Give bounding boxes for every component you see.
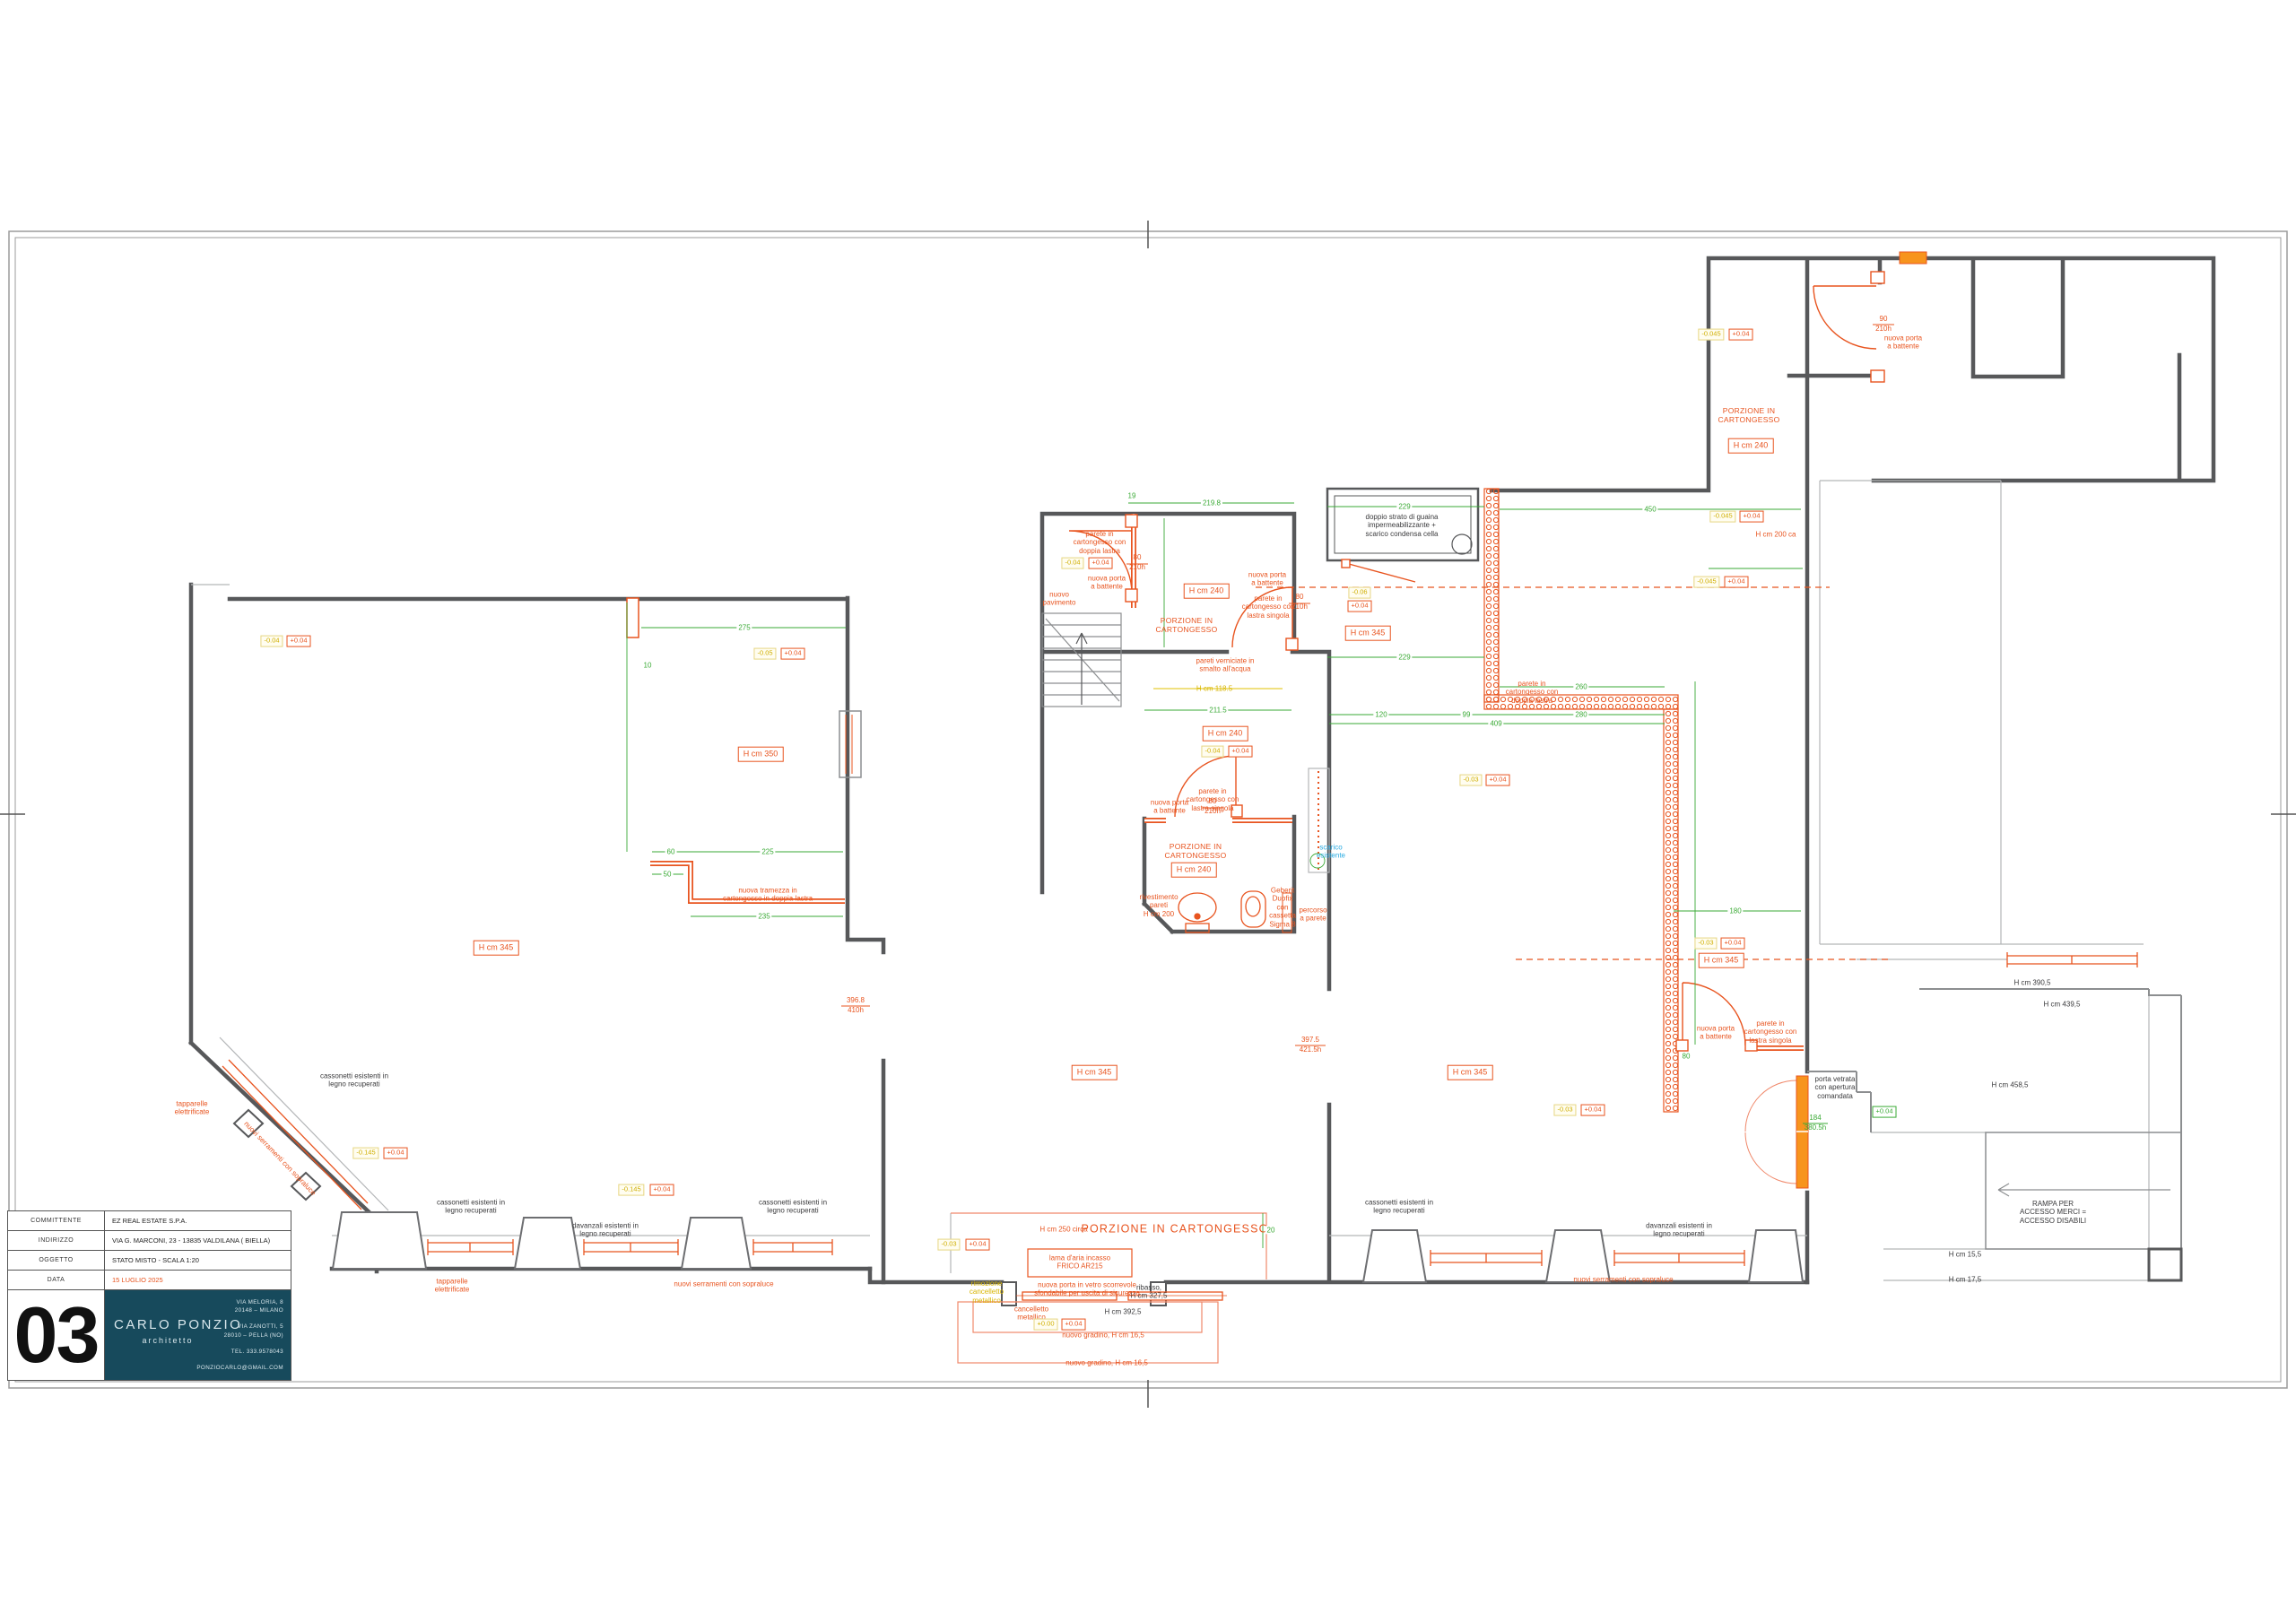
annotation-black: cassonetti esistenti in legno recuperati — [437, 1199, 505, 1216]
elevation-project: +0.04 — [287, 636, 311, 647]
dimension-value: 219.8 — [1201, 499, 1222, 507]
opening-dimension: 80 210h — [1205, 797, 1221, 817]
dimension-value: 450 — [1642, 505, 1657, 513]
row-value: EZ REAL ESTATE S.P.A. — [105, 1211, 291, 1230]
dimension-value: 19 — [1126, 491, 1138, 499]
annotation-black: H cm 15,5 — [1949, 1250, 1981, 1258]
elevation-existing: -0.03 — [1553, 1105, 1576, 1116]
dimension-value: 225 — [760, 847, 775, 855]
elevation-project: +0.04 — [1486, 775, 1510, 786]
row-label: COMMITTENTE — [8, 1211, 105, 1230]
sheet-number: 03 — [8, 1290, 105, 1380]
room-height-box: H cm 240 — [1184, 584, 1230, 599]
annotation: nuova porta a battente — [1884, 334, 1922, 351]
elevation-project: +0.04 — [1721, 938, 1745, 950]
annotation-black: RAMPA PER ACCESSO MERCI = ACCESSO DISABI… — [2020, 1200, 2086, 1225]
architect-brand: CARLO PONZIO architetto VIA MELORIA, 8 2… — [105, 1290, 291, 1380]
annotation: cancelletto metallico — [1014, 1305, 1048, 1323]
annotation: parete in cartongesso con lastra singola — [1187, 787, 1239, 812]
elevation-existing: -0.03 — [1694, 938, 1717, 950]
elevation-project: +0.04 — [1348, 601, 1372, 612]
annotation: tapparelle elettrificate — [435, 1278, 470, 1295]
annotation: Geberit Duofix con cassetta Sigma 8 — [1269, 886, 1296, 928]
dimension-value: 275 — [736, 623, 752, 631]
elevation-existing: -0.045 — [1693, 577, 1719, 588]
annotation: nuovi serramenti con sopraluce — [1573, 1275, 1673, 1283]
annotation: nuova porta a battente — [1248, 571, 1286, 588]
elevation-existing: -0.145 — [352, 1148, 378, 1159]
annotation-black: H cm 390,5 — [2014, 978, 2051, 986]
plan-annotations: PORZIONE IN CARTONGESSOPORZIONE IN CARTO… — [0, 0, 2296, 1622]
annotation: parete in cartongesso con lastra singola — [1242, 594, 1295, 620]
dimension-value: 180 — [1727, 906, 1743, 915]
opening-dimension: 80 210h — [1291, 593, 1308, 612]
annotation: nuovi serramenti con sopraluce — [242, 1120, 317, 1198]
annotation: tapparelle elettrificate — [175, 1100, 210, 1117]
annotation-black: cassonetti esistenti in legno recuperati — [1365, 1199, 1433, 1216]
room-height-box: H cm 345 — [474, 941, 519, 956]
annotation: percorso a parete — [1299, 906, 1326, 924]
annotation: H cm 200 ca — [1756, 530, 1796, 538]
title-block-row: INDIRIZZO VIA G. MARCONI, 23 - 13835 VAL… — [8, 1231, 291, 1251]
row-label: DATA — [8, 1271, 105, 1289]
annotation: nuova porta a battente — [1697, 1025, 1735, 1042]
room-height-box: H cm 240 — [1728, 438, 1774, 454]
opening-dimension: 80 210h — [1129, 553, 1145, 573]
opening-dimension: 90 210h — [1875, 315, 1892, 334]
row-label: OGGETTO — [8, 1251, 105, 1270]
elevation-project: +0.04 — [1725, 577, 1749, 588]
opening-dimension: 397.5 421.5h — [1300, 1036, 1321, 1055]
elevation-project: +0.04 — [1581, 1105, 1605, 1116]
annotation: PORZIONE IN CARTONGESSO — [1155, 616, 1217, 634]
elevation-existing: -0.145 — [618, 1184, 644, 1196]
dimension-value: 10 — [642, 661, 654, 669]
dimension-value: 229 — [1396, 502, 1412, 510]
room-height-box: H cm 345 — [1448, 1065, 1493, 1080]
row-label: INDIRIZZO — [8, 1231, 105, 1250]
room-height-box: H cm 345 — [1072, 1065, 1118, 1080]
row-value: VIA G. MARCONI, 23 - 13835 VALDILANA ( B… — [105, 1231, 291, 1250]
annotation-black: ribasso, H cm 327,5 — [1131, 1284, 1168, 1301]
annotation: nuovi serramenti con sopraluce — [674, 1279, 773, 1288]
annotation: rivestimento pareti H cm 200 — [1139, 893, 1178, 918]
annotation-yellow: H cm 118.5 — [1196, 684, 1232, 692]
dimension-value: 60 — [665, 847, 677, 855]
elevation-existing: -0.045 — [1698, 329, 1724, 341]
annotation: PORZIONE IN CARTONGESSO — [1164, 842, 1226, 860]
opening-dimension: 396.8 410h — [847, 996, 865, 1016]
annotation: PORZIONE IN CARTONGESSO — [1718, 406, 1779, 424]
elevation-project: +0.04 — [1729, 329, 1753, 341]
elevation-project: +0.04 — [1229, 746, 1253, 758]
dimension-value: 99 — [1461, 710, 1473, 718]
opening-dimension: 184 380.5h — [1805, 1114, 1826, 1133]
annotation-black: H cm 17,5 — [1949, 1275, 1981, 1283]
elevation-existing: -0.03 — [937, 1239, 960, 1251]
elevation-project-green: +0.04 — [1873, 1106, 1897, 1118]
elevation-existing: -0.06 — [1348, 587, 1370, 599]
dimension-value: 211.5 — [1207, 706, 1228, 714]
annotation: nuovo gradino, H cm 16,5 — [1065, 1358, 1148, 1366]
dimension-value: 80 — [1681, 1052, 1692, 1060]
dimension-value: 20 — [1265, 1226, 1277, 1234]
annotation: nuova porta a battente — [1151, 799, 1188, 816]
title-block-row: OGGETTO STATO MISTO - SCALA 1:20 — [8, 1251, 291, 1271]
elevation-existing: -0.05 — [753, 648, 776, 660]
annotation-black: H cm 458,5 — [1992, 1080, 2029, 1089]
room-height-box: H cm 350 — [738, 747, 784, 762]
dimension-value: 235 — [756, 912, 771, 920]
brand-row: 03 CARLO PONZIO architetto VIA MELORIA, … — [8, 1290, 291, 1380]
elevation-existing: -0.04 — [260, 636, 283, 647]
elevation-existing: -0.04 — [1061, 558, 1083, 569]
elevation-existing: +0.00 — [1034, 1319, 1058, 1331]
annotation-black: H cm 439,5 — [2044, 1000, 2081, 1008]
row-value: STATO MISTO - SCALA 1:20 — [105, 1251, 291, 1270]
annotation-black: doppio strato di guaina impermeabilizzan… — [1366, 513, 1439, 538]
dimension-value: 260 — [1573, 682, 1588, 690]
elevation-existing: -0.04 — [1201, 746, 1223, 758]
annotation: parete in cartongesso con lastra singola — [1744, 1019, 1797, 1045]
floor-plan-sheet: PORZIONE IN CARTONGESSOPORZIONE IN CARTO… — [0, 0, 2296, 1622]
annotation: lama d'aria incasso FRICO AR215 — [1049, 1254, 1110, 1271]
elevation-project: +0.04 — [1740, 511, 1764, 523]
annotation: nuovo pavimento — [1043, 591, 1076, 608]
annotation: nuova porta a battente — [1088, 575, 1126, 592]
date-value: 15 LUGLIO 2025 — [105, 1271, 291, 1289]
annotation-black: davanzali esistenti in legno recuperati — [572, 1222, 639, 1239]
annotation: parete in cartongesso con doppia lastra — [1506, 680, 1559, 705]
dimension-value: 280 — [1573, 710, 1588, 718]
annotation: nuova porta in vetro scorrevole sfondabi… — [1034, 1281, 1140, 1298]
elevation-project: +0.04 — [650, 1184, 674, 1196]
annotation: H cm 250 circa — [1039, 1225, 1087, 1233]
elevation-project: +0.04 — [1062, 1319, 1086, 1331]
annotation-black: cassonetti esistenti in legno recuperati — [759, 1199, 827, 1216]
annotation-black: davanzali esistenti in legno recuperati — [1646, 1222, 1712, 1239]
elevation-project: +0.04 — [384, 1148, 408, 1159]
annotation: nuova tramezza in cartongesso in doppia … — [723, 887, 813, 904]
architect-contact: VIA MELORIA, 8 20148 – MILANO VIA ZANOTT… — [196, 1298, 283, 1372]
dimension-value: 409 — [1488, 719, 1503, 727]
annotation: nuovo gradino, H cm 16,5 — [1062, 1331, 1144, 1339]
room-height-box: H cm 240 — [1203, 726, 1248, 742]
room-height-box: H cm 345 — [1345, 626, 1391, 641]
annotation: pareti verniciate in smalto all'acqua — [1196, 657, 1255, 674]
annotation-black: porta vetrata con apertura comandata — [1815, 1075, 1856, 1100]
dimension-value: 229 — [1396, 653, 1412, 661]
elevation-existing: -0.045 — [1709, 511, 1735, 523]
annotation-yellow: rimozione cancelletto metallico — [970, 1279, 1004, 1305]
dimension-value: 50 — [662, 870, 674, 878]
title-block-row: COMMITTENTE EZ REAL ESTATE S.P.A. — [8, 1211, 291, 1231]
drain-note: scarico esistente — [1317, 844, 1345, 861]
title-block-row: DATA 15 LUGLIO 2025 — [8, 1271, 291, 1290]
title-block: COMMITTENTE EZ REAL ESTATE S.P.A. INDIRI… — [7, 1210, 291, 1381]
annotation: parete in cartongesso con doppia lastra — [1074, 530, 1126, 555]
annotation-black: H cm 392,5 — [1105, 1307, 1142, 1315]
room-height-box: H cm 345 — [1699, 953, 1744, 968]
elevation-project: +0.04 — [1089, 558, 1113, 569]
elevation-project: +0.04 — [966, 1239, 990, 1251]
dimension-value: 120 — [1373, 710, 1388, 718]
room-height-box: H cm 240 — [1171, 863, 1217, 878]
elevation-existing: -0.03 — [1459, 775, 1482, 786]
annotation-black: cassonetti esistenti in legno recuperati — [320, 1072, 388, 1089]
elevation-project: +0.04 — [781, 648, 805, 660]
annotation: PORZIONE IN CARTONGESSO — [1081, 1223, 1268, 1236]
